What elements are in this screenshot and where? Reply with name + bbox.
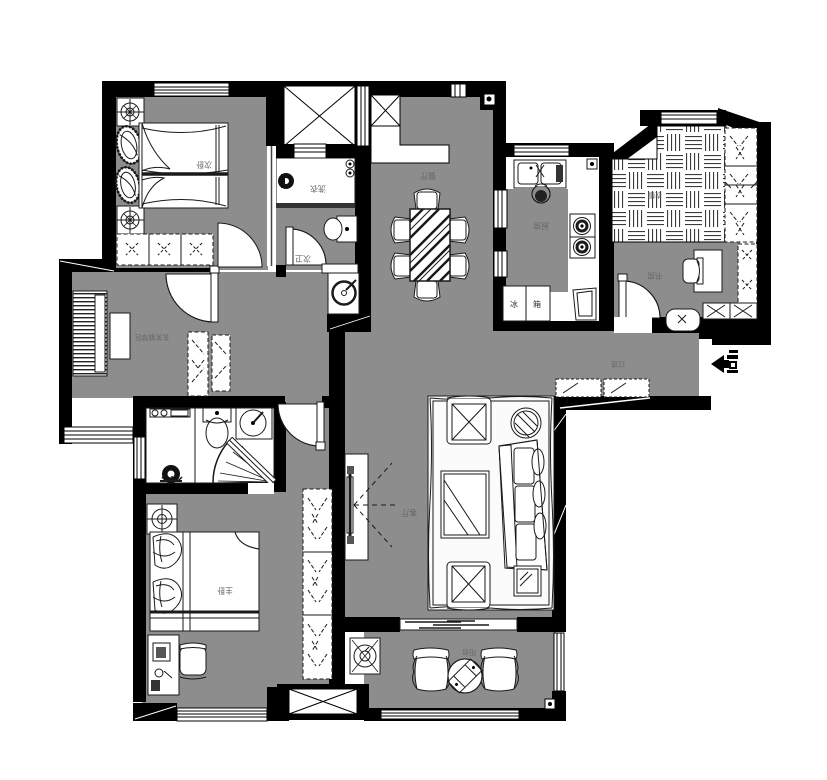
svg-text:箱: 箱 [533,299,541,309]
svg-text:次卫: 次卫 [295,254,311,264]
svg-text:阳台: 阳台 [462,648,476,657]
svg-text:主卧: 主卧 [217,586,233,596]
svg-text:过道: 过道 [611,360,625,369]
svg-text:书房: 书房 [647,271,663,281]
svg-text:厨房: 厨房 [533,221,549,231]
svg-text:衣帽: 衣帽 [648,191,662,200]
svg-text:冰: 冰 [510,299,518,309]
svg-text:玄关钢琴区: 玄关钢琴区 [135,333,170,342]
svg-text:洗衣: 洗衣 [310,184,326,194]
svg-text:次卧: 次卧 [196,160,212,170]
svg-text:餐厅: 餐厅 [420,171,436,180]
svg-text:客厅: 客厅 [401,508,417,518]
